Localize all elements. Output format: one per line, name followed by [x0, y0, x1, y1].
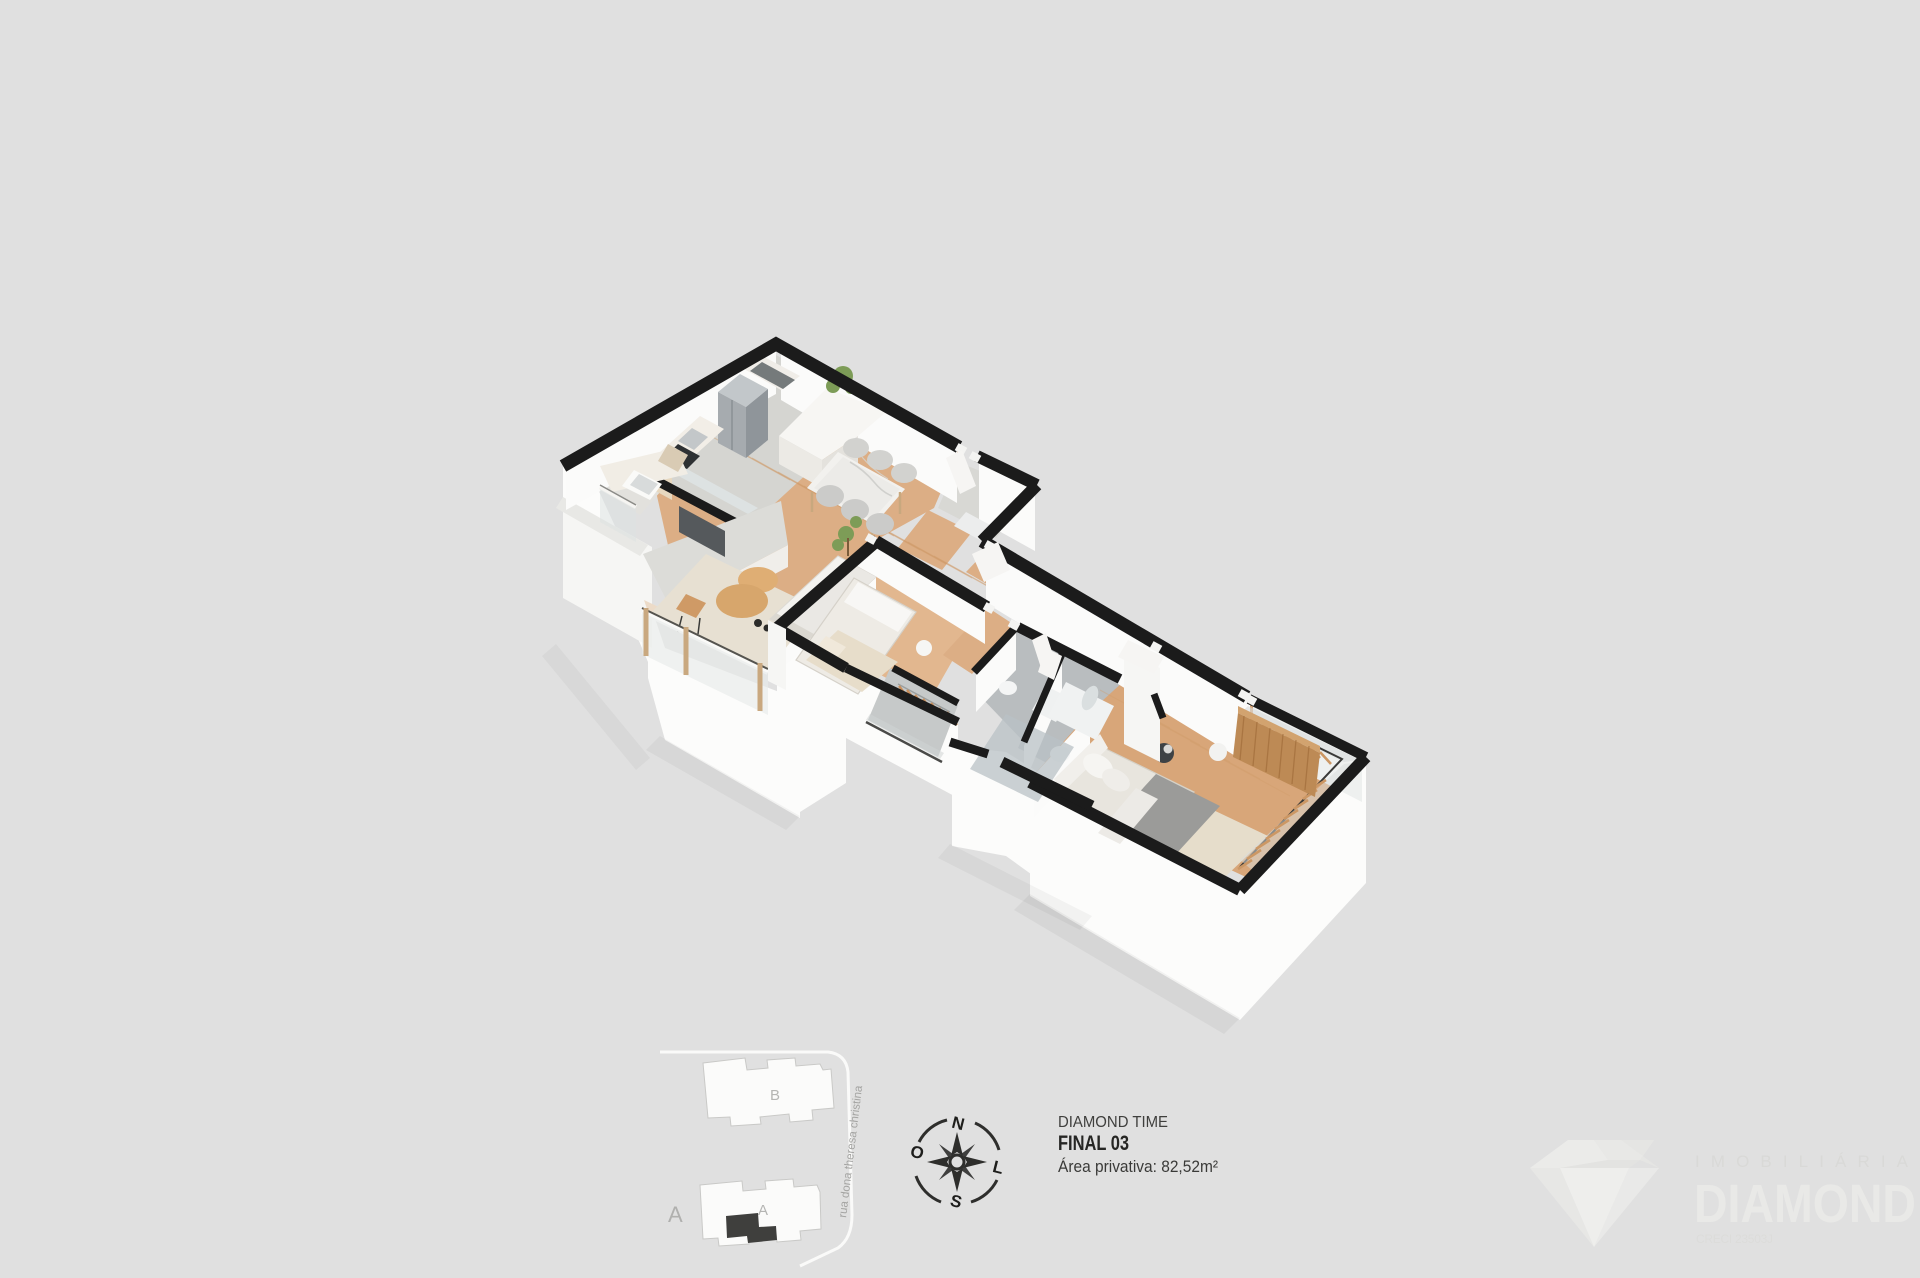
svg-text:CRECI 23503J: CRECI 23503J [1696, 1232, 1773, 1246]
svg-text:A: A [758, 1202, 768, 1219]
svg-text:Área privativa: 82,52m²: Área privativa: 82,52m² [1058, 1157, 1218, 1176]
svg-text:DIAMOND TIME: DIAMOND TIME [1058, 1114, 1168, 1131]
svg-text:DIAMOND: DIAMOND [1694, 1174, 1916, 1234]
svg-text:A: A [668, 1202, 683, 1227]
svg-text:B: B [770, 1087, 780, 1104]
svg-text:FINAL 03: FINAL 03 [1058, 1132, 1129, 1155]
